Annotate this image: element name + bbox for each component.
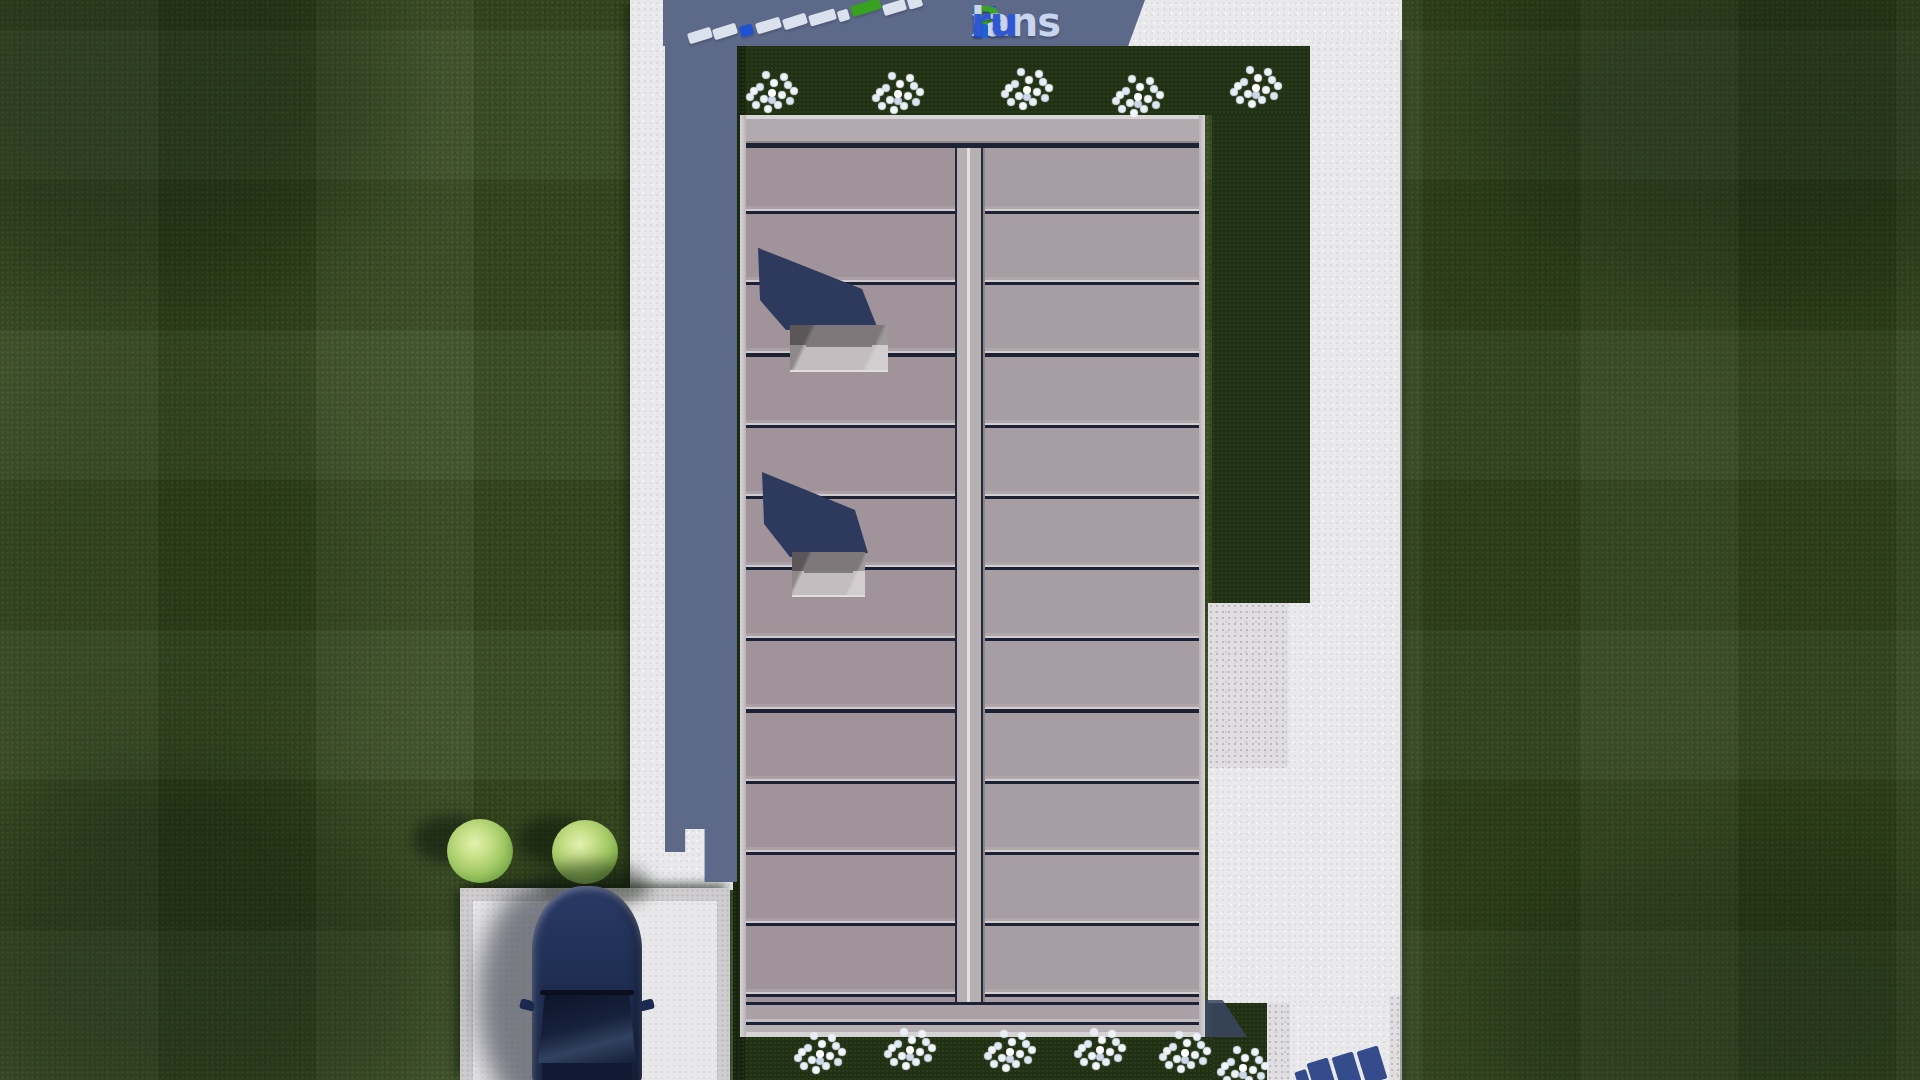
flower-cluster-8 [1096, 1046, 1104, 1054]
chimney-1 [790, 325, 888, 372]
flower-cluster-10 [1239, 1064, 1247, 1072]
roof-west-gutter [740, 115, 746, 1037]
logo-segment-6: ru [971, 0, 1017, 44]
car-cowl-line [540, 990, 634, 995]
car [532, 886, 642, 1080]
roof-ridge [955, 115, 985, 1037]
flower-cluster-7 [1006, 1048, 1014, 1056]
gravel-pad [1208, 603, 1288, 768]
flower-cluster-5 [816, 1050, 824, 1058]
path-east-edge-shadow [1400, 40, 1411, 1080]
flower-cluster-4 [1252, 84, 1260, 92]
roof-south-edge-band [740, 1002, 1205, 1037]
site-plan-render: FıxPlansru [0, 0, 1920, 1080]
flower-cluster-3 [1134, 93, 1142, 101]
flower-bed-east [1212, 115, 1310, 603]
roof-north-edge-band [740, 115, 1205, 148]
right-lawn-tint [1402, 0, 1920, 1080]
chimney-2 [792, 552, 865, 597]
roof-east-slope [985, 143, 1205, 1037]
flower-cluster-2 [1023, 86, 1031, 94]
sidewalk-east [1310, 40, 1402, 603]
bush-0 [447, 819, 513, 883]
flower-cluster-0 [768, 89, 776, 97]
roof-east-gutter [1199, 115, 1205, 1037]
house-shadow-west-path [665, 0, 737, 882]
flower-cluster-9 [1181, 1049, 1189, 1057]
car-roof [542, 1063, 632, 1080]
gravel-border-left [1267, 1003, 1290, 1080]
car-windshield [538, 995, 636, 1063]
flower-cluster-6 [906, 1046, 914, 1054]
flower-bed-south [745, 1037, 1267, 1080]
house-roof [740, 115, 1205, 1037]
flower-cluster-1 [894, 90, 902, 98]
flower-bed-north [730, 46, 1310, 115]
